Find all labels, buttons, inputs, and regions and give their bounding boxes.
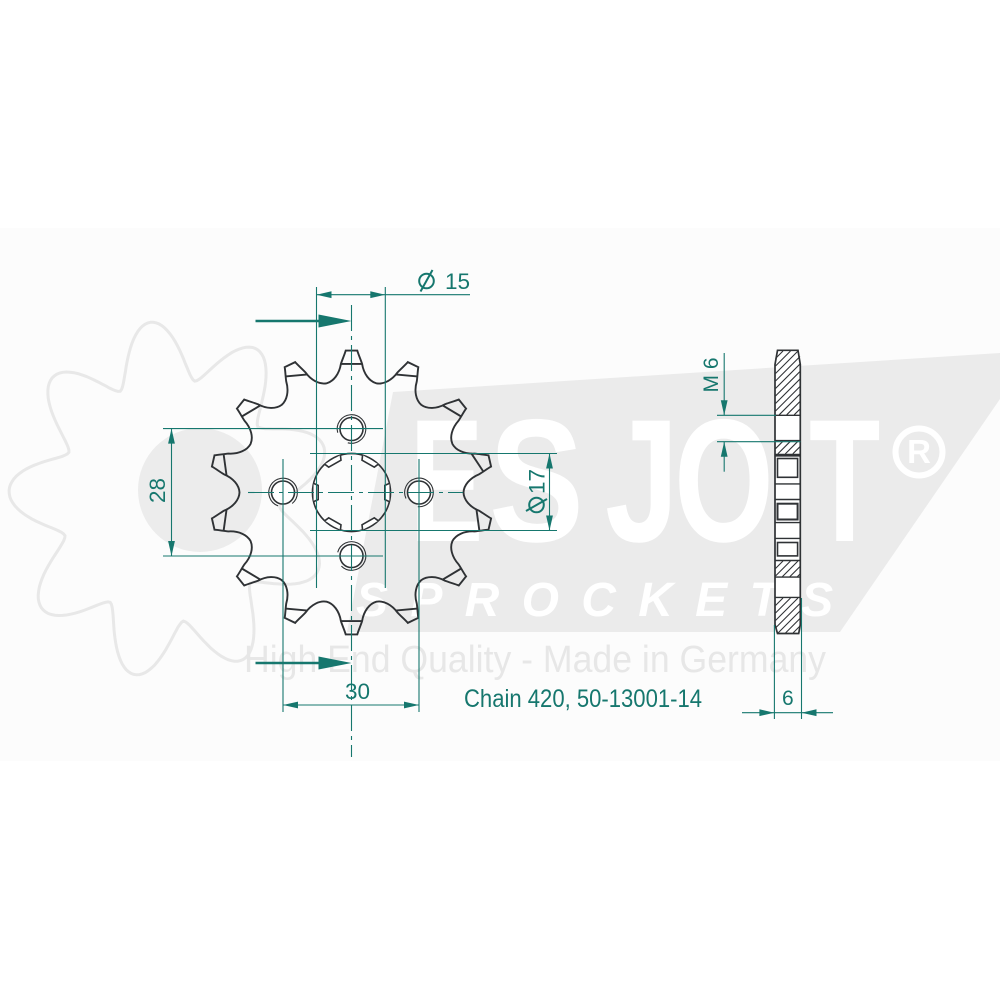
svg-text:T: T [809, 382, 880, 578]
svg-text:28: 28 [145, 478, 170, 503]
svg-text:R: R [907, 433, 931, 470]
svg-text:6: 6 [782, 687, 794, 710]
svg-text:15: 15 [445, 269, 470, 294]
svg-text:M 6: M 6 [700, 357, 723, 392]
svg-text:30: 30 [345, 679, 370, 704]
svg-text:17: 17 [525, 469, 550, 494]
svg-text:J: J [605, 382, 679, 578]
svg-text:E: E [410, 382, 483, 578]
svg-text:Chain 420, 50-13001-14: Chain 420, 50-13001-14 [464, 685, 702, 713]
